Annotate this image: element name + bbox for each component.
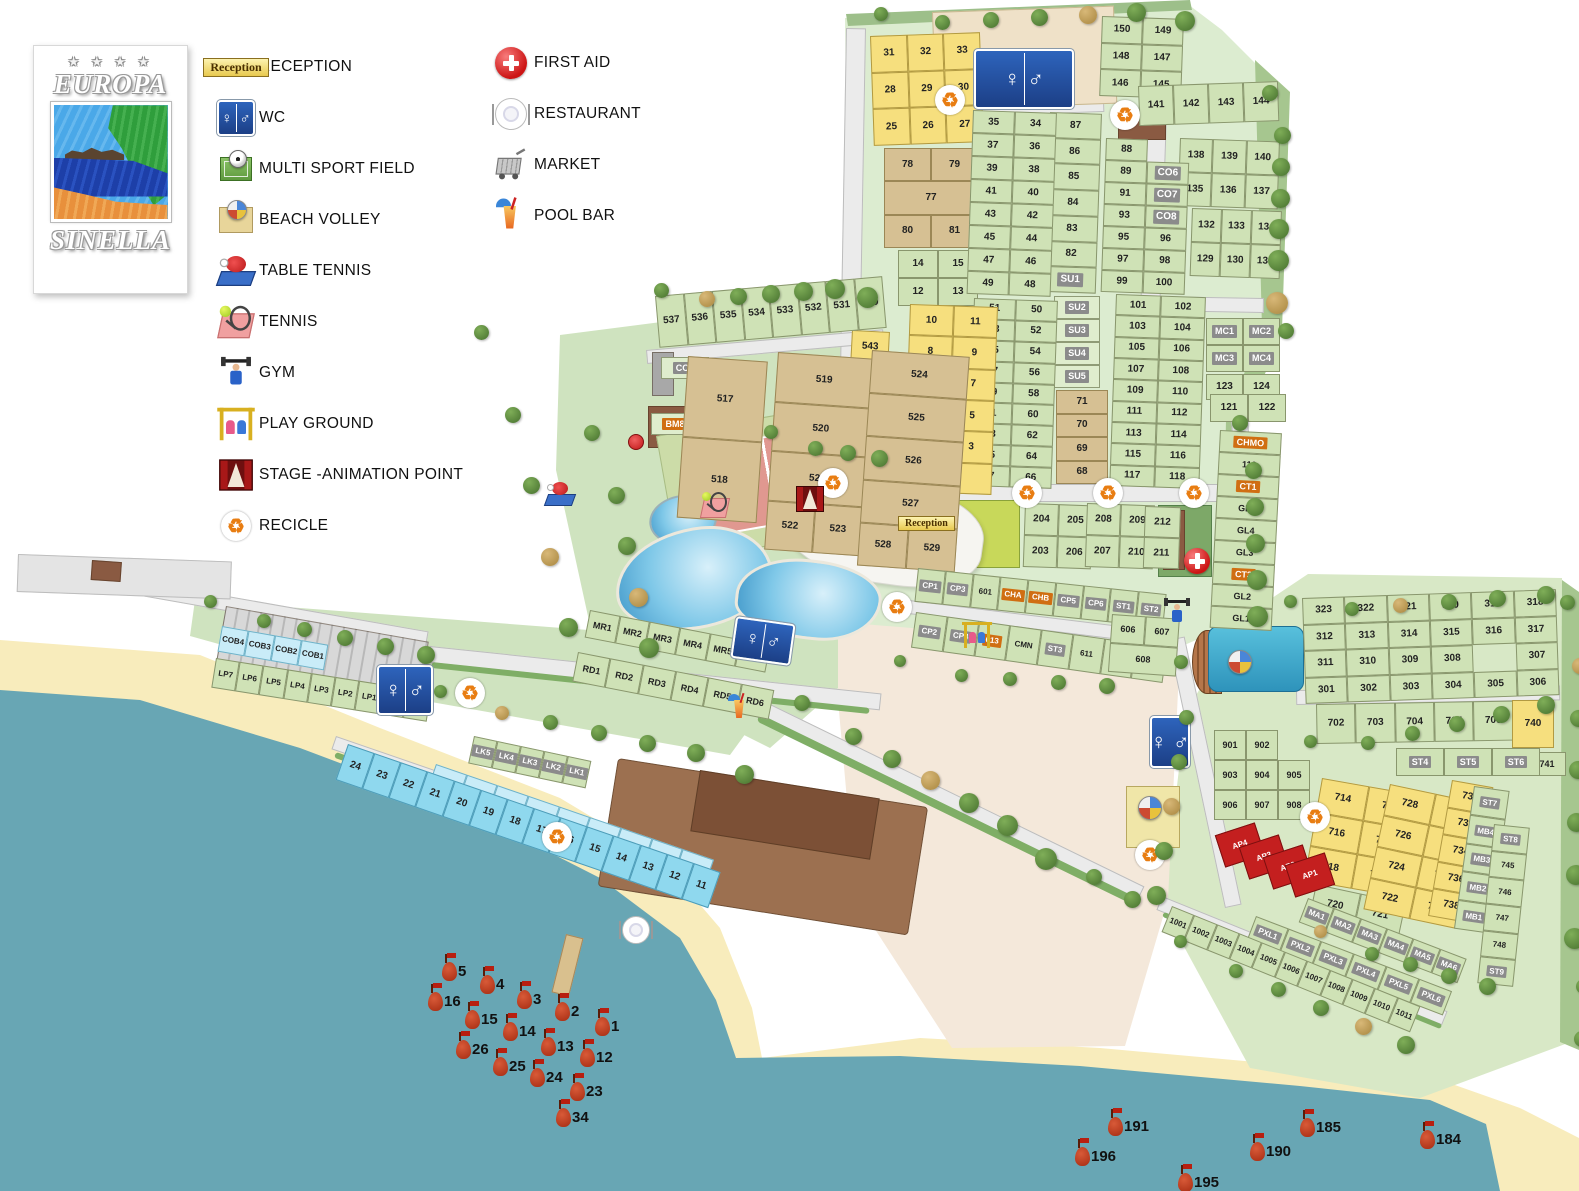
zone-green-135-140: 138139140135136137 [1178, 138, 1280, 209]
legend-item-recicle: ♻RECICLE [213, 507, 463, 545]
badge-ST2: ST2 [1140, 603, 1162, 616]
plot-SU1: SU1 [1044, 266, 1097, 294]
buoy-label: 184 [1436, 1131, 1461, 1148]
zone-ap-buildings: AP4AP3AP2AP1 [1215, 820, 1345, 902]
plot-314: 314 [1388, 620, 1431, 648]
badge-SU5: SU5 [1065, 370, 1089, 382]
buoy-body [1300, 1118, 1315, 1137]
plot-109: 109 [1112, 379, 1158, 402]
badge-CHMO: CHMO [1233, 436, 1267, 450]
badge-CO8: CO8 [1153, 210, 1180, 224]
plot-89: 89 [1104, 160, 1147, 183]
recycle-icon: ♻ [1012, 478, 1042, 508]
tree [871, 450, 888, 467]
tennis-icon [213, 303, 259, 341]
tree [1570, 710, 1579, 727]
buoy-flag [1425, 1121, 1434, 1126]
legend-item-market: MARKET [488, 146, 641, 184]
plot-83: 83 [1046, 215, 1099, 243]
tree [808, 441, 823, 456]
plot-114: 114 [1156, 423, 1202, 446]
plot-91: 91 [1104, 182, 1147, 205]
buoy-flag [546, 1028, 555, 1033]
plot-50: 50 [1015, 299, 1058, 321]
plot-82: 82 [1045, 240, 1098, 268]
tree [297, 622, 312, 637]
plot-CMN: CMN [1005, 625, 1041, 665]
tree [1479, 978, 1496, 995]
tree [1246, 498, 1264, 516]
badge-ST6: ST6 [1505, 756, 1528, 768]
buoy-label: 1 [611, 1018, 619, 1035]
umbrella-icon [628, 434, 644, 450]
buoy-label: 26 [472, 1041, 489, 1058]
buoy-body [442, 962, 457, 981]
plot-203: 203 [1023, 535, 1058, 568]
legend-label: WC [259, 109, 285, 127]
stage-icon [219, 459, 253, 490]
plot-303: 303 [1389, 673, 1432, 701]
plot-42: 42 [1011, 203, 1054, 227]
badge-LK3: LK3 [518, 755, 541, 770]
buoy-label: 13 [557, 1038, 574, 1055]
plot-141: 141 [1138, 85, 1174, 126]
recycle-icon: ♻ [882, 592, 912, 622]
tree [1403, 957, 1418, 972]
legend-label: RECEPTION [259, 58, 352, 76]
plot-38: 38 [1013, 157, 1056, 181]
buoy-label: 196 [1091, 1148, 1116, 1165]
plot-SU4: SU4 [1054, 342, 1100, 365]
plot-323: 323 [1302, 597, 1345, 625]
badge-CO6: CO6 [1154, 166, 1181, 180]
plot-CP3: CP3 [942, 571, 973, 608]
tree [1247, 570, 1267, 590]
restaurant-icon [488, 95, 534, 133]
tree [955, 669, 968, 682]
recycle-icon: ♻ [455, 678, 485, 708]
plot-106: 106 [1159, 338, 1205, 361]
plot-146: 146 [1099, 69, 1141, 97]
tree [1361, 736, 1375, 750]
tree [1268, 250, 1289, 271]
plot-703: 703 [1355, 703, 1395, 744]
tree [1284, 595, 1297, 608]
buoy-label: 4 [496, 976, 504, 993]
buoy-flag [560, 993, 569, 998]
first-aid-icon [495, 47, 527, 79]
plot-133: 133 [1221, 209, 1252, 244]
plot-111: 111 [1112, 401, 1158, 424]
tabletennis-icon [213, 252, 259, 290]
plot-317: 317 [1514, 616, 1557, 644]
first-aid-icon [1184, 548, 1210, 574]
plot-52: 52 [1015, 320, 1058, 342]
tree [1179, 710, 1194, 725]
tree [959, 793, 979, 813]
logo-line2: SINELLA [34, 226, 187, 254]
plot-207: 207 [1085, 535, 1120, 568]
buoy-flag [1255, 1133, 1264, 1138]
tree [1564, 928, 1579, 949]
tennis-icon [700, 492, 730, 518]
plot-305: 305 [1474, 670, 1517, 698]
poolbar-icon [488, 197, 534, 235]
buoy-body [1108, 1117, 1123, 1136]
plot-139: 139 [1212, 139, 1246, 174]
plot-47: 47 [967, 248, 1010, 272]
plot-69: 69 [1056, 437, 1108, 461]
buoy-body [428, 992, 443, 1011]
buoy-body [503, 1022, 518, 1041]
legend-item-reception: ReceptionRECEPTION [213, 48, 463, 86]
plot-104: 104 [1159, 317, 1205, 340]
plot-904: 904 [1246, 760, 1278, 790]
buoy-label: 190 [1266, 1143, 1291, 1160]
buoy-flag [575, 1073, 584, 1078]
buoy-flag [522, 981, 531, 986]
legend-label: TABLE TENNIS [259, 262, 371, 280]
legend-label: STAGE -ANIMATION POINT [259, 466, 463, 484]
badge-PXL6: PXL6 [1417, 987, 1445, 1007]
plot-32: 32 [907, 33, 945, 71]
plot-11: 11 [953, 306, 998, 339]
badge-ST3: ST3 [1044, 643, 1066, 657]
tree [1269, 219, 1289, 239]
buoy-flag [508, 1013, 517, 1018]
badge-ST1: ST1 [1113, 600, 1135, 613]
badge-MA1: MA1 [1304, 906, 1329, 925]
badge-MC1: MC1 [1212, 325, 1237, 337]
plot-MC2: MC2 [1243, 318, 1280, 345]
buoy-body [541, 1037, 556, 1056]
buoy-flag [1080, 1138, 1089, 1143]
beach-volley-icon [227, 200, 247, 220]
plot-112: 112 [1157, 402, 1203, 425]
zone-col-68-71: 71706968 [1056, 390, 1108, 484]
badge-ST5: ST5 [1457, 756, 1480, 768]
badge-CP5: CP5 [1057, 594, 1080, 607]
tree [1567, 813, 1579, 832]
plot-537: 537 [655, 294, 688, 348]
tree [1031, 9, 1048, 26]
plot-208: 208 [1086, 503, 1121, 536]
plot-CO6: CO6 [1146, 161, 1189, 184]
plot-ST3: ST3 [1037, 630, 1073, 670]
beach-volley-icon [1228, 650, 1252, 674]
plot-105: 105 [1114, 337, 1160, 360]
tree [735, 765, 754, 784]
playground-icon [213, 405, 259, 443]
plot-103: 103 [1115, 315, 1161, 338]
tree [1051, 675, 1066, 690]
plot-36: 36 [1013, 134, 1056, 158]
tree [204, 595, 217, 608]
plot-148: 148 [1100, 43, 1142, 71]
plot-ST4: ST4 [1396, 748, 1444, 776]
plot-608: 608 [1108, 643, 1178, 677]
legend-label: POOL BAR [534, 207, 615, 225]
badge-SU1: SU1 [1057, 273, 1083, 287]
plot-58: 58 [1012, 383, 1055, 405]
plot-122: 122 [1248, 394, 1286, 422]
tree [474, 325, 489, 340]
recycle-icon: ♻ [1300, 802, 1330, 832]
tree [629, 588, 648, 607]
badge-MC3: MC3 [1212, 352, 1237, 364]
zone-row-st4-st6: ST4ST5ST6 [1396, 748, 1540, 776]
buoy-flag [585, 1039, 594, 1044]
plot-96: 96 [1144, 227, 1187, 250]
tree [1449, 716, 1465, 732]
tree [1313, 1000, 1329, 1016]
buoy-label: 195 [1194, 1174, 1219, 1191]
legend-item-table-tennis: TABLE TENNIS [213, 252, 463, 290]
tree [1314, 925, 1327, 938]
stage-icon [796, 486, 824, 512]
plot-14: 14 [898, 250, 938, 278]
plot-902: 902 [1246, 730, 1278, 760]
legend-label: TENNIS [259, 313, 318, 331]
plot-71: 71 [1056, 390, 1108, 414]
buoy-flag [485, 966, 494, 971]
buoy-body [480, 975, 495, 994]
buoy-flag [433, 983, 442, 988]
plot-307: 307 [1515, 642, 1558, 670]
buoy-flag [447, 953, 456, 958]
zone-grid-34-49: 35343736393841404342454447464948 [967, 110, 1057, 297]
buoy-flag [470, 1001, 479, 1006]
tree [1171, 754, 1187, 770]
buoy-flag [1305, 1109, 1314, 1114]
buoy-body [465, 1010, 480, 1029]
plot-130: 130 [1220, 243, 1251, 278]
tree [983, 12, 999, 28]
tree [764, 425, 778, 439]
buoy-body [580, 1048, 595, 1067]
buoy-flag [561, 1099, 570, 1104]
badge-LK1: LK1 [565, 764, 588, 779]
beach-volley-court [219, 207, 253, 233]
stage-icon [213, 456, 259, 494]
plot-524: 524 [869, 350, 970, 400]
badge-PXL4: PXL4 [1352, 962, 1380, 982]
zone-grid-88-100: 8889CO691CO793CO89596979899100 [1101, 138, 1190, 295]
buoy-body [595, 1017, 610, 1036]
buoy-flag [498, 1048, 507, 1053]
buoy-label: 23 [586, 1083, 603, 1100]
buoy-body [1250, 1142, 1265, 1161]
plot-12: 12 [898, 278, 938, 306]
tree [1278, 323, 1294, 339]
zone-grid-301-323: 3233223213203193183123133143153163173113… [1302, 589, 1560, 704]
zone-mc-block: MC1MC2MC3MC4 [1206, 318, 1280, 372]
tree [840, 445, 856, 461]
tree [377, 638, 394, 655]
buoy-body [1178, 1173, 1193, 1191]
plot-311: 311 [1304, 649, 1347, 677]
plot-101: 101 [1115, 294, 1161, 317]
wc-icon: ♀♂ [730, 616, 795, 666]
zone-col-su2-su5: SU2SU3SU4SU5 [1054, 296, 1100, 388]
plot-CHA: CHA [997, 577, 1028, 614]
plot-SU3: SU3 [1054, 319, 1100, 342]
buoy-body [555, 1002, 570, 1021]
tree [1174, 935, 1187, 948]
plot-147: 147 [1141, 44, 1183, 72]
tree [1266, 292, 1288, 314]
tree [794, 695, 810, 711]
plot-31: 31 [870, 35, 908, 73]
buoy-label: 34 [572, 1109, 589, 1126]
badge-CP2: CP2 [918, 625, 941, 639]
legend-item-pool-bar: POOL BAR [488, 197, 641, 235]
tree [1147, 886, 1166, 905]
plot-143: 143 [1208, 82, 1244, 123]
wc-icon: ♀♂ [217, 100, 255, 136]
badge-SU3: SU3 [1065, 324, 1089, 336]
playground-icon [962, 622, 992, 648]
buoy-label: 3 [533, 991, 541, 1008]
legend-label: RECICLE [259, 517, 328, 535]
reception-tag: Reception [203, 58, 268, 77]
badge-CP6: CP6 [1084, 597, 1107, 610]
buoy-label: 16 [444, 993, 461, 1010]
plot-606: 606 [1110, 614, 1146, 645]
buoy-body [556, 1108, 571, 1127]
gym-icon [1164, 598, 1190, 626]
plot-517: 517 [682, 356, 767, 442]
tree [1304, 735, 1317, 748]
buoy-label: 14 [519, 1023, 536, 1040]
badge-MC2: MC2 [1249, 325, 1274, 337]
tree [417, 646, 435, 664]
plot-80: 80 [884, 215, 931, 248]
plot-CHB: CHB [1025, 580, 1056, 617]
plot-113: 113 [1111, 422, 1157, 445]
plot-108: 108 [1158, 360, 1204, 383]
tree [559, 618, 578, 637]
badge-MA3: MA3 [1357, 926, 1382, 945]
playground-icon [217, 408, 255, 441]
badge-SU4: SU4 [1065, 347, 1089, 359]
plot-CO8: CO8 [1145, 205, 1188, 228]
multi-sport-field-icon [220, 157, 252, 181]
gym-icon [213, 354, 259, 392]
plot-84: 84 [1046, 189, 1099, 217]
tree [584, 425, 600, 441]
plot-312: 312 [1303, 623, 1346, 651]
buoy-body [530, 1068, 545, 1087]
plot-CO7: CO7 [1146, 183, 1189, 206]
plot [1473, 644, 1516, 672]
plot-706: 706 [1473, 701, 1513, 742]
plot [1147, 139, 1190, 162]
logo-line1: EUROPA [34, 70, 187, 98]
badge-ST8: ST8 [1500, 832, 1522, 845]
wc-icon: ♀♂ [974, 49, 1074, 109]
tree [699, 291, 715, 307]
zone-grid-121-122: 121122 [1210, 394, 1286, 422]
tree [1345, 602, 1359, 616]
tree [1441, 594, 1457, 610]
table-tennis-icon [219, 256, 254, 286]
plot-54: 54 [1014, 341, 1057, 363]
tree [1365, 947, 1379, 961]
buoy-body [1420, 1130, 1435, 1149]
plot-34: 34 [1014, 111, 1057, 135]
plot-41: 41 [970, 179, 1013, 203]
plot-906: 906 [1214, 790, 1246, 820]
tree [1489, 590, 1506, 607]
plot-115: 115 [1110, 443, 1156, 466]
tree [1397, 1036, 1415, 1054]
plot-313: 313 [1345, 622, 1388, 650]
plot-136: 136 [1211, 173, 1245, 208]
zone-grid-211-212: 212211 [1143, 506, 1181, 569]
tree [762, 285, 780, 303]
zone-tan-77: 7879778081 [884, 148, 978, 248]
tree [1124, 891, 1141, 908]
buoy-body [570, 1082, 585, 1101]
buoy-flag [1113, 1108, 1122, 1113]
plot-49: 49 [967, 271, 1010, 295]
legend-label: MARKET [534, 156, 600, 174]
badge-LK5: LK5 [471, 745, 494, 760]
plot-39: 39 [971, 156, 1014, 180]
tree [1247, 606, 1268, 627]
tree [1272, 158, 1290, 176]
legend-item-multi-sport-field: MULTI SPORT FIELD [213, 150, 463, 188]
buoy-label: 185 [1316, 1119, 1341, 1136]
tree [591, 725, 607, 741]
plot-10: 10 [909, 304, 954, 337]
plot-86: 86 [1048, 138, 1101, 166]
zone-grid-901-908: 901902903904905906907908 [1214, 730, 1310, 820]
plot-301: 301 [1305, 676, 1348, 704]
plot-87: 87 [1049, 112, 1102, 140]
plot-95: 95 [1102, 226, 1145, 249]
plot-35: 35 [972, 110, 1015, 134]
plot-MC4: MC4 [1243, 345, 1280, 372]
plot-107: 107 [1113, 358, 1159, 381]
badge-CT1: CT1 [1236, 480, 1260, 494]
plot-88: 88 [1105, 138, 1148, 161]
badge-CP3: CP3 [946, 583, 969, 596]
plot-MC1: MC1 [1206, 318, 1243, 345]
badge-ST7: ST7 [1479, 796, 1501, 810]
buoy-label: 15 [481, 1011, 498, 1028]
plot-ST8: ST8 [1491, 824, 1530, 854]
legend-label: FIRST AID [534, 54, 610, 72]
tree [1537, 696, 1555, 714]
recycle-icon: ♻ [213, 507, 259, 545]
tree [1079, 6, 1097, 24]
tree [1271, 189, 1290, 208]
tree [523, 477, 540, 494]
recycle-icon: ♻ [221, 511, 251, 541]
restaurant-icon [495, 98, 527, 130]
legend-item-play-ground: PLAY GROUND [213, 405, 463, 443]
plot-116: 116 [1155, 445, 1201, 468]
tree [654, 283, 669, 298]
badge-CO7: CO7 [1154, 188, 1181, 202]
reception-map-tag: Reception [898, 516, 955, 531]
legend-column-1: ReceptionRECEPTION♀♂WCMULTI SPORT FIELDB… [213, 48, 463, 558]
plot-308: 308 [1431, 645, 1474, 673]
tree [1003, 672, 1017, 686]
tree [1274, 127, 1291, 144]
